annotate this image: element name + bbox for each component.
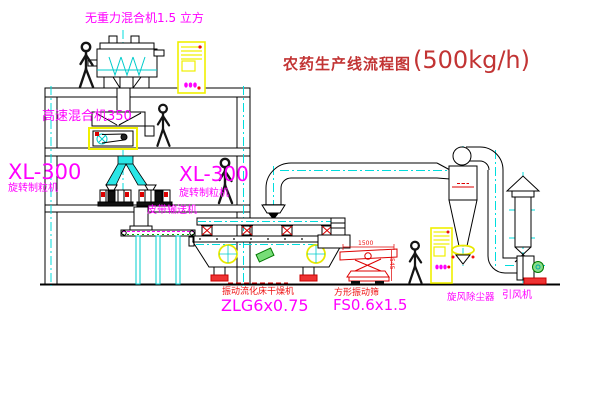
indicator-light bbox=[198, 45, 201, 48]
worker-figure-roof bbox=[80, 43, 93, 87]
control-cabinet-roof bbox=[178, 42, 205, 93]
right-wall bbox=[237, 90, 250, 284]
conveyor-legs bbox=[136, 236, 180, 284]
cyclone-label: 旋风除尘器 bbox=[447, 293, 495, 303]
screen-length-dim-label: 1500 bbox=[358, 241, 373, 247]
floor-slab-2 bbox=[45, 148, 250, 156]
granulator-left bbox=[98, 185, 133, 206]
fan-label: 引风机 bbox=[502, 291, 532, 301]
cabinet-knobs bbox=[435, 265, 446, 270]
granulator-left-model-label: XL-300 bbox=[8, 162, 81, 183]
y-chute bbox=[106, 156, 147, 185]
fluid-bed-dryer bbox=[189, 218, 343, 283]
fan-base bbox=[524, 278, 546, 284]
exhaust-stack bbox=[507, 176, 539, 262]
gravity-mixer-unit bbox=[88, 36, 164, 88]
spring-mounts bbox=[201, 226, 333, 236]
granulator-left-name-label: 旋转制粒机 bbox=[8, 184, 58, 194]
process-flow-diagram: 农药生产线流程图 (500kg/h) 无重力混合机1.5 立方 高速混合机350… bbox=[0, 0, 600, 403]
transfer-duct bbox=[262, 163, 450, 220]
granulator-right-model-label: XL-300 bbox=[179, 164, 249, 184]
granulator-right bbox=[137, 185, 172, 206]
fan-motor bbox=[533, 262, 544, 273]
title-text: 农药生产线流程图 bbox=[283, 47, 411, 74]
indicator-light bbox=[447, 231, 450, 234]
granulator-right-name-label: 旋转制粒机 bbox=[179, 189, 229, 199]
exciter-block bbox=[256, 248, 274, 262]
floor-slab-3 bbox=[45, 88, 250, 97]
indicator-light bbox=[447, 266, 450, 269]
belt-conveyor bbox=[121, 230, 195, 284]
indicator-light bbox=[197, 86, 200, 89]
screen-height-dim-label: 545 bbox=[388, 258, 394, 269]
cabinet-knobs bbox=[184, 82, 197, 87]
screen-model-label: FS0.6x1.5 bbox=[333, 298, 407, 313]
worker-figure-ground bbox=[409, 242, 421, 283]
belt-conveyor-label: 皮带输送机 bbox=[147, 206, 197, 216]
induced-draft-fan bbox=[517, 256, 546, 284]
worker-figure-2f bbox=[157, 105, 169, 146]
gravity-mixer-label: 无重力混合机1.5 立方 bbox=[85, 12, 204, 24]
cyclone-separator bbox=[449, 147, 477, 264]
cyclone-outlet-circle bbox=[453, 147, 471, 165]
high-speed-mixer-label: 高速混合机350 bbox=[42, 110, 132, 123]
control-cabinet-ground bbox=[431, 228, 452, 283]
page-title: 农药生产线流程图 (500kg/h) bbox=[283, 46, 530, 74]
dryer-model-label: ZLG6x0.75 bbox=[221, 298, 309, 314]
title-capacity: (500kg/h) bbox=[413, 46, 530, 74]
